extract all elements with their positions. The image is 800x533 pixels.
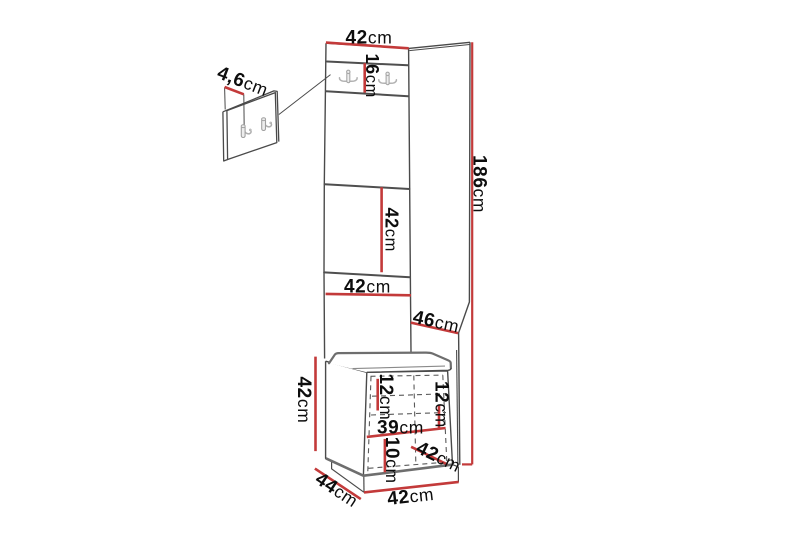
- svg-text:42cm: 42cm: [382, 208, 402, 252]
- svg-text:10cm: 10cm: [381, 437, 402, 484]
- svg-text:12cm: 12cm: [431, 381, 452, 428]
- svg-text:42cm: 42cm: [293, 377, 314, 424]
- svg-text:42cm: 42cm: [346, 28, 393, 49]
- svg-text:12cm: 12cm: [375, 374, 396, 421]
- svg-text:16cm: 16cm: [362, 54, 382, 98]
- svg-text:39cm: 39cm: [377, 418, 424, 439]
- svg-text:42cm: 42cm: [344, 277, 391, 298]
- svg-text:186cm: 186cm: [469, 155, 490, 213]
